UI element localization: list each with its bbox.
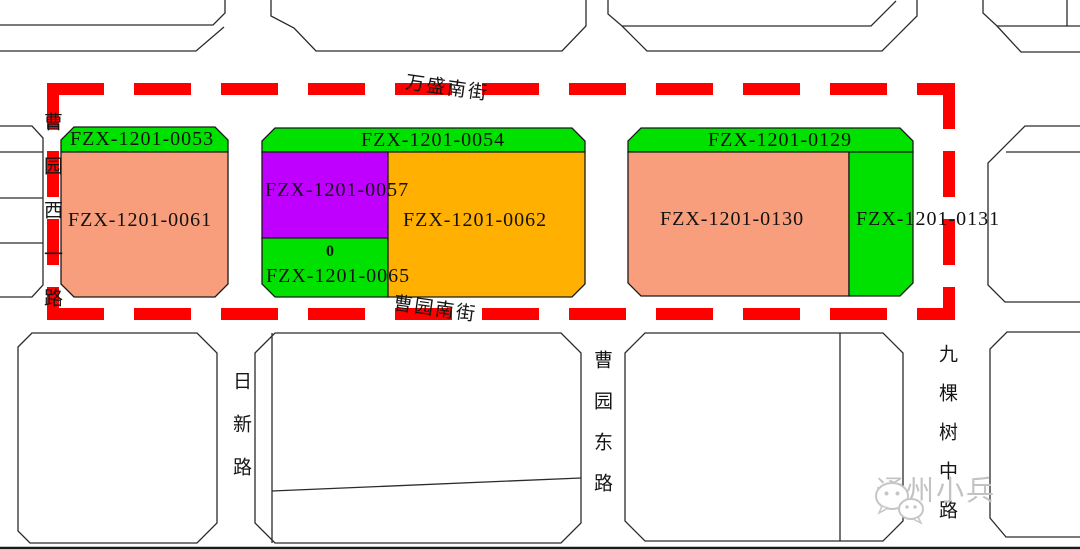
block-toprightmid-outline — [608, 0, 896, 26]
wechat-icon — [872, 477, 928, 525]
parcel-label-0130: FZX-1201-0130 — [660, 209, 804, 229]
bottommiddle-divider-slant — [272, 478, 581, 491]
watermark: 通州小兵 — [872, 477, 996, 507]
map-svg — [0, 0, 1080, 550]
block-bottommiddle-outline — [255, 333, 581, 543]
street-label-jiukeshu-middle: 九棵树中路 — [937, 344, 956, 539]
parcel-note-0065: 0 — [326, 244, 334, 260]
street-label-caoyuan-east: 曹园东路 — [592, 350, 611, 514]
block-topfarright-outline — [983, 0, 1080, 26]
block-rightlower-outline — [990, 332, 1080, 537]
parcel-label-0131: FZX-1201-0131 — [856, 209, 1000, 229]
street-label-rixin: 日新路 — [231, 371, 250, 500]
parcel-label-0057: FZX-1201-0057 — [265, 180, 409, 200]
block-topfarright-inner-line — [997, 26, 1080, 52]
parcel-label-0062: FZX-1201-0062 — [403, 210, 547, 230]
parcel-label-0054: FZX-1201-0054 — [361, 130, 505, 150]
block-topleft-inner-line — [0, 27, 224, 51]
block-topleft-outline — [0, 0, 225, 25]
parcel-label-0053: FZX-1201-0053 — [70, 129, 214, 149]
street-label-caoyuan-west1: 曹园西一路 — [42, 112, 61, 332]
land-parcel-map: FZX-1201-0053 FZX-1201-0061 FZX-1201-005… — [0, 0, 1080, 550]
block-bottomright-outline — [625, 333, 903, 541]
block-topmiddle-outline — [271, 0, 586, 51]
parcel-label-0129: FZX-1201-0129 — [708, 130, 852, 150]
parcel-label-0061: FZX-1201-0061 — [68, 210, 212, 230]
parcel-label-0065: FZX-1201-0065 — [266, 266, 410, 286]
block-bottomleft-outline — [18, 333, 217, 543]
